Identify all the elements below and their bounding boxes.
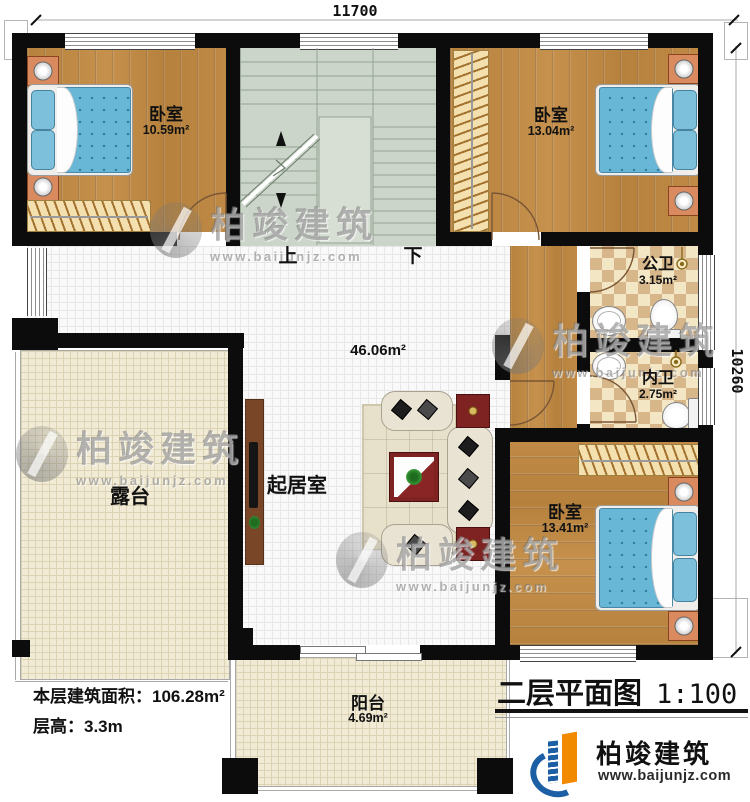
nightstand <box>668 477 700 507</box>
floor-hallway <box>510 246 577 442</box>
wall <box>195 33 300 48</box>
sofa-three-seat <box>447 426 493 534</box>
wardrobe <box>27 200 151 232</box>
pillow <box>673 130 697 170</box>
nightstand <box>668 611 700 641</box>
window <box>300 33 398 50</box>
wall <box>577 292 590 338</box>
end-table <box>456 394 490 428</box>
room-label-bedroom3: 卧室 <box>525 504 605 522</box>
end-table-knob <box>469 407 478 416</box>
room-label-bedroom2: 卧室 <box>511 107 591 125</box>
stair-down-label: 下 <box>402 247 424 267</box>
end-table-knob <box>469 540 478 549</box>
wall <box>698 350 713 368</box>
sink-basin <box>597 311 621 331</box>
window <box>698 255 715 350</box>
lamp-icon <box>675 60 694 79</box>
floor-terrace <box>20 350 230 680</box>
room-label-living: 起居室 <box>253 476 341 497</box>
window <box>698 368 715 425</box>
room-area-balcony: 4.69m² <box>328 712 408 725</box>
sofa-cushion <box>391 399 412 420</box>
company-website: www.baijunjz.com <box>598 768 731 784</box>
wall <box>228 645 300 660</box>
pillow <box>673 558 697 602</box>
dim-bracket-bottom-right <box>712 598 748 658</box>
terrace-pillar <box>12 640 30 657</box>
room-label-public-bath: 公卫 <box>618 257 698 274</box>
wall <box>541 232 713 246</box>
sliding-door-panel <box>356 653 422 661</box>
plan-title: 二层平面图 <box>497 670 642 712</box>
plan-scale: 1:100 <box>656 679 737 710</box>
wall <box>436 33 450 246</box>
floor-height-info: 层高：3.3m <box>33 712 123 737</box>
room-label-private-bath: 内卫 <box>618 371 698 388</box>
wall <box>420 645 520 660</box>
toilet-bowl <box>662 402 691 429</box>
wardrobe-rail <box>581 460 697 462</box>
room-area-private-bath: 2.75m² <box>618 388 698 401</box>
balcony-parapet-line <box>230 790 510 791</box>
title-rule-thin <box>495 717 748 718</box>
company-name: 柏竣建筑 <box>596 734 712 771</box>
window <box>65 33 195 50</box>
room-area-bedroom2: 13.04m² <box>511 125 591 138</box>
pillow <box>673 512 697 556</box>
wall <box>12 232 177 246</box>
wardrobe <box>453 50 489 232</box>
sofa-cushion <box>417 399 438 420</box>
wall <box>495 335 510 380</box>
sofa-cushion <box>458 468 479 489</box>
dimension-top: 11700 <box>325 2 385 20</box>
lamp-icon <box>675 483 694 502</box>
wall <box>698 33 713 255</box>
wall <box>12 33 27 246</box>
coffee-table <box>389 452 439 502</box>
dim-bracket-top-right <box>724 22 748 60</box>
pillow <box>31 90 55 130</box>
sofa-cushion <box>405 534 426 555</box>
title-block: 二层平面图 1:100 <box>497 670 748 712</box>
lamp-icon <box>34 178 53 197</box>
pillow <box>31 130 55 170</box>
dimension-right: 10260 <box>728 346 746 396</box>
wall <box>398 33 540 48</box>
lamp-icon <box>34 62 53 81</box>
window <box>540 33 648 50</box>
room-label-terrace: 露台 <box>98 487 162 508</box>
balcony-pillar <box>477 758 513 794</box>
room-area-bedroom1: 10.59m² <box>126 124 206 137</box>
stair-up-label: 上 <box>277 247 299 267</box>
floor-area-label: 本层建筑面积： <box>33 687 152 706</box>
tv-icon <box>249 442 258 508</box>
wall <box>577 338 713 352</box>
wardrobe-rail <box>471 53 473 229</box>
sink <box>592 306 626 336</box>
nightstand <box>668 186 700 216</box>
room-area-public-bath: 3.15m² <box>618 274 698 287</box>
wardrobe <box>578 444 700 476</box>
wall <box>44 333 244 348</box>
nightstand <box>27 172 59 202</box>
sofa-cushion <box>458 436 479 457</box>
lamp-icon <box>675 192 694 211</box>
floor-corridor <box>27 246 240 335</box>
balcony-pillar <box>222 758 258 794</box>
floor-stairwell <box>240 47 438 252</box>
wall <box>636 645 713 660</box>
wall-terrace-divider <box>228 335 243 660</box>
pillow <box>673 90 697 130</box>
wall <box>450 232 492 246</box>
armchair <box>381 524 453 566</box>
floor-area-info: 本层建筑面积：106.28m² <box>33 682 225 707</box>
company-logo-icon <box>532 731 588 789</box>
floor-height-value: 3.3m <box>84 717 123 736</box>
plant-icon <box>406 469 422 485</box>
end-table <box>456 527 490 561</box>
terrace-parapet-line <box>15 352 16 680</box>
room-area-living: 46.06m² <box>338 343 418 359</box>
wall <box>495 428 713 442</box>
floor-area-value: 106.28m² <box>152 687 225 706</box>
lamp-icon <box>675 617 694 636</box>
title-rule-thick <box>495 709 748 713</box>
plant-icon <box>249 516 260 529</box>
nightstand <box>27 56 59 86</box>
floor-height-label: 层高： <box>33 717 84 736</box>
wardrobe-rail <box>30 216 148 218</box>
nightstand <box>668 54 700 84</box>
sofa-two-seat <box>381 391 453 431</box>
window <box>27 248 47 316</box>
wall <box>226 33 240 246</box>
room-label-bedroom1: 卧室 <box>126 106 206 124</box>
window <box>520 645 636 662</box>
wall <box>577 352 590 372</box>
wall <box>698 425 713 660</box>
room-area-bedroom3: 13.41m² <box>525 522 605 535</box>
sofa-cushion <box>458 500 479 521</box>
floor-plan: 柏竣建筑 www.baijunjz.com 柏竣建筑 www.baijunjz.… <box>0 0 750 802</box>
wall <box>495 442 510 660</box>
toilet-bowl <box>650 299 678 331</box>
